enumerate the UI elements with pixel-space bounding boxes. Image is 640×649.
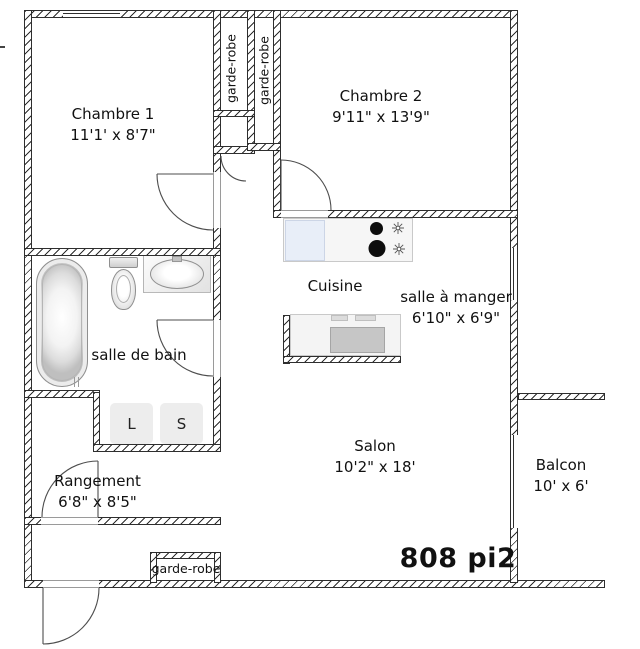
toilet-bowl xyxy=(111,269,136,310)
island-fixture xyxy=(331,315,348,321)
door-arc-chambre1 xyxy=(157,174,213,230)
door-arc-chambre2 xyxy=(281,160,331,210)
patio-door-balcon xyxy=(510,435,518,528)
label-rangement: Rangement 6'8" x 8'5" xyxy=(25,471,170,513)
door-opening-rangement xyxy=(41,517,98,525)
room-name: Chambre 2 xyxy=(301,86,461,107)
label-garde-robe-1: garde-robe xyxy=(224,34,239,104)
room-dims: 11'1' x 8'7" xyxy=(33,125,193,146)
door-opening-chambre1 xyxy=(213,172,221,228)
wall-bath-top xyxy=(24,248,221,256)
wall-garde-robe2-bottom xyxy=(247,143,281,151)
door-arc-entrance xyxy=(43,588,99,644)
island-cooktop xyxy=(330,327,385,353)
room-name: Salon xyxy=(293,436,457,457)
island-fixture xyxy=(355,315,376,321)
bathtub-drain xyxy=(73,377,80,387)
room-name: Chambre 1 xyxy=(33,104,193,125)
washer-label: L xyxy=(127,415,135,433)
door-opening-chambre2 xyxy=(281,210,328,218)
wall-laundry-bottom xyxy=(93,444,221,452)
label-cuisine: Cuisine xyxy=(285,276,385,297)
wall-garde-robe1-bottom xyxy=(213,110,255,117)
room-dims: 9'11" x 13'9" xyxy=(301,107,461,128)
refrigerator xyxy=(285,220,325,261)
toilet-tank xyxy=(109,257,138,268)
label-salle-de-bain: salle de bain xyxy=(77,345,201,366)
room-dims: 6'10" x 6'9" xyxy=(393,308,519,329)
sink-faucet xyxy=(172,256,182,262)
door-arc-niche xyxy=(221,156,246,181)
room-name: salle à manger xyxy=(393,287,519,308)
room-name: Rangement xyxy=(25,471,170,492)
label-chambre2: Chambre 2 9'11" x 13'9" xyxy=(301,86,461,128)
room-name: Cuisine xyxy=(285,276,385,297)
window-chambre1 xyxy=(63,10,120,18)
floor-plan: L S xyxy=(0,0,640,649)
wall-chambre2-west xyxy=(273,10,281,218)
wall-bath-bottom xyxy=(24,390,100,398)
wall-hall-vertical xyxy=(213,10,221,452)
bathtub xyxy=(36,258,88,387)
washer-box: L xyxy=(110,403,153,444)
label-balcon: Balcon 10' x 6' xyxy=(518,455,604,497)
wall-laundry-west xyxy=(93,392,100,450)
label-garde-robe-2: garde-robe xyxy=(257,36,272,106)
door-opening-entrance xyxy=(43,580,99,588)
dryer-box: S xyxy=(160,403,203,444)
wall-tick xyxy=(0,46,5,48)
dryer-label: S xyxy=(177,415,187,433)
room-dims: 10'2" x 18' xyxy=(293,457,457,478)
label-salon: Salon 10'2" x 18' xyxy=(293,436,457,478)
room-name: Balcon xyxy=(518,455,604,476)
room-name: salle de bain xyxy=(77,345,201,366)
door-opening-bain xyxy=(213,320,221,377)
label-chambre1: Chambre 1 11'1' x 8'7" xyxy=(33,104,193,146)
label-garde-robe-entree: garde-robe xyxy=(151,561,221,576)
wall-island-bottom xyxy=(283,356,401,363)
total-area-label: 808 pi2 xyxy=(388,543,528,574)
bathroom-sink xyxy=(150,259,204,289)
label-salle-a-manger: salle à manger 6'10" x 6'9" xyxy=(393,287,519,329)
wall-balcony-rail xyxy=(518,393,605,400)
wall-closet-separator xyxy=(247,10,255,152)
vanity-edge xyxy=(145,292,211,293)
room-dims: 10' x 6' xyxy=(518,476,604,497)
room-dims: 6'8" x 8'5" xyxy=(25,492,170,513)
wall-entry-closet-top xyxy=(150,552,221,559)
